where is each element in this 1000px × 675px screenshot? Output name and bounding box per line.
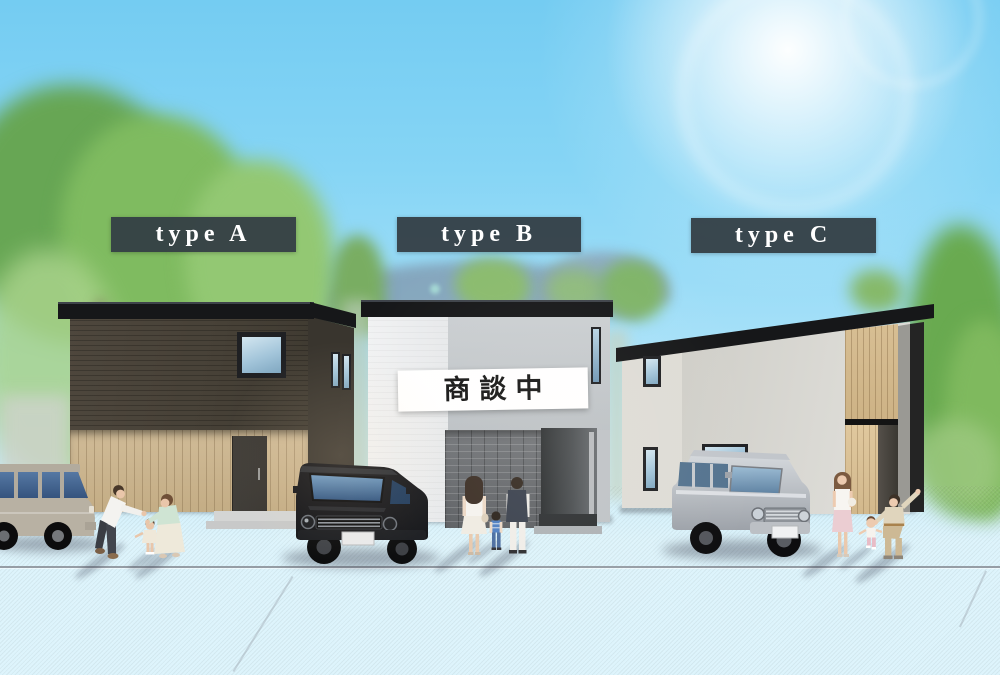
- person-man-crouching: [873, 489, 921, 559]
- house-c-lower-left-window: [643, 447, 658, 491]
- house-c-wood-accent: [845, 320, 898, 422]
- house-b-entrance-step: [539, 514, 597, 526]
- label-type-a: type A: [111, 217, 296, 252]
- negotiation-banner: 商談中: [398, 367, 589, 411]
- label-type-c: type C: [691, 218, 876, 253]
- model-houses-photo: type A type B type C 商談中: [0, 0, 1000, 675]
- family-group-c: [826, 468, 926, 566]
- house-a-side-window-2: [342, 354, 351, 390]
- person-child-back: [490, 511, 503, 550]
- house-a-side-window-1: [331, 352, 340, 388]
- car-suv-black: [288, 450, 434, 568]
- car-suv-silver: [666, 442, 814, 560]
- person-man-bending: [95, 485, 147, 559]
- house-c-upper-left-window: [643, 356, 661, 387]
- person-woman-back: [461, 476, 489, 555]
- house-a-door: [232, 436, 267, 513]
- house-b-entrance-step-lower: [534, 526, 602, 534]
- car-suv-beige: [0, 456, 98, 552]
- person-man-back: [506, 477, 530, 554]
- person-woman-standing: [832, 472, 856, 557]
- house-b-roof: [361, 300, 613, 317]
- tree-behind-c-roof: [850, 270, 902, 312]
- label-type-b: type B: [397, 217, 581, 252]
- house-b-gray-wall-lower-right: [597, 430, 610, 522]
- house-b-tall-window: [591, 327, 601, 384]
- house-a-window: [237, 332, 286, 378]
- house-a-roof: [58, 302, 314, 319]
- family-group-a: [88, 478, 200, 574]
- house-a-door-handle: [258, 468, 260, 480]
- family-group-b: [458, 474, 534, 562]
- house-b-entrance-door-edge: [589, 432, 594, 514]
